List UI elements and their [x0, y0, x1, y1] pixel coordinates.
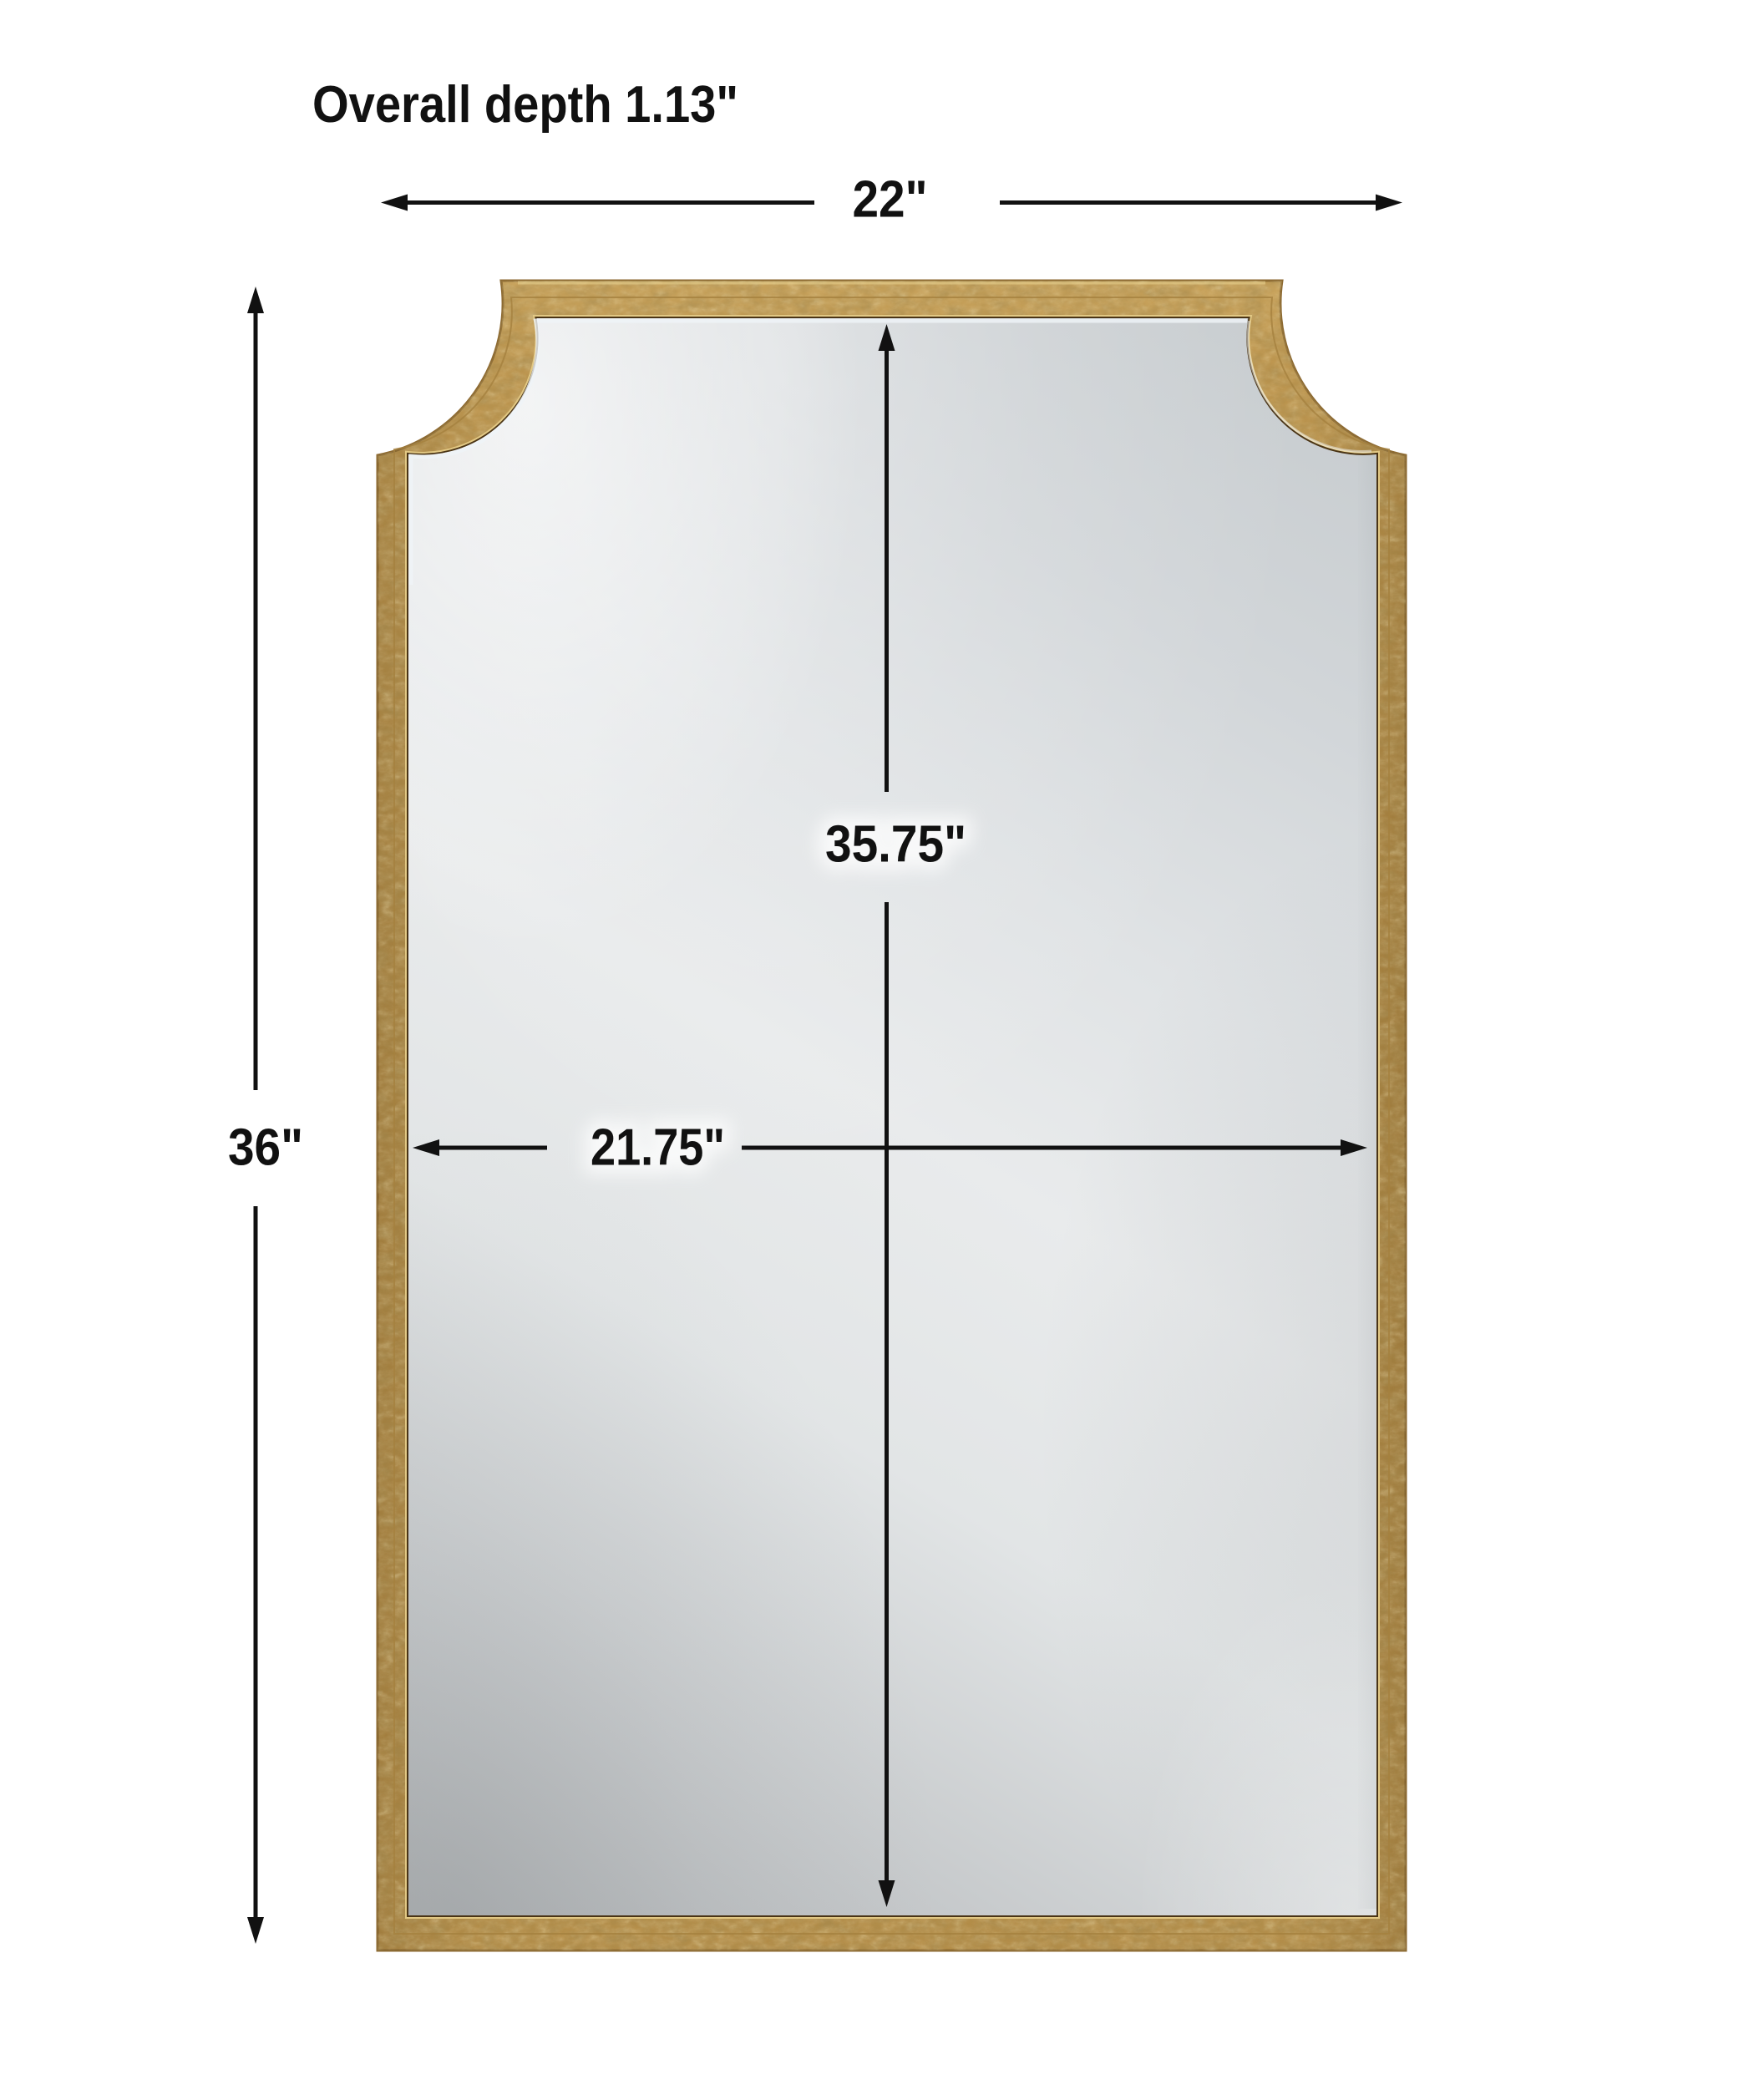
svg-text:Overall depth 1.13": Overall depth 1.13": [312, 76, 738, 134]
svg-text:35.75": 35.75": [825, 816, 966, 874]
svg-text:22": 22": [853, 171, 928, 229]
svg-text:36": 36": [228, 1119, 303, 1177]
svg-text:21.75": 21.75": [591, 1119, 725, 1177]
